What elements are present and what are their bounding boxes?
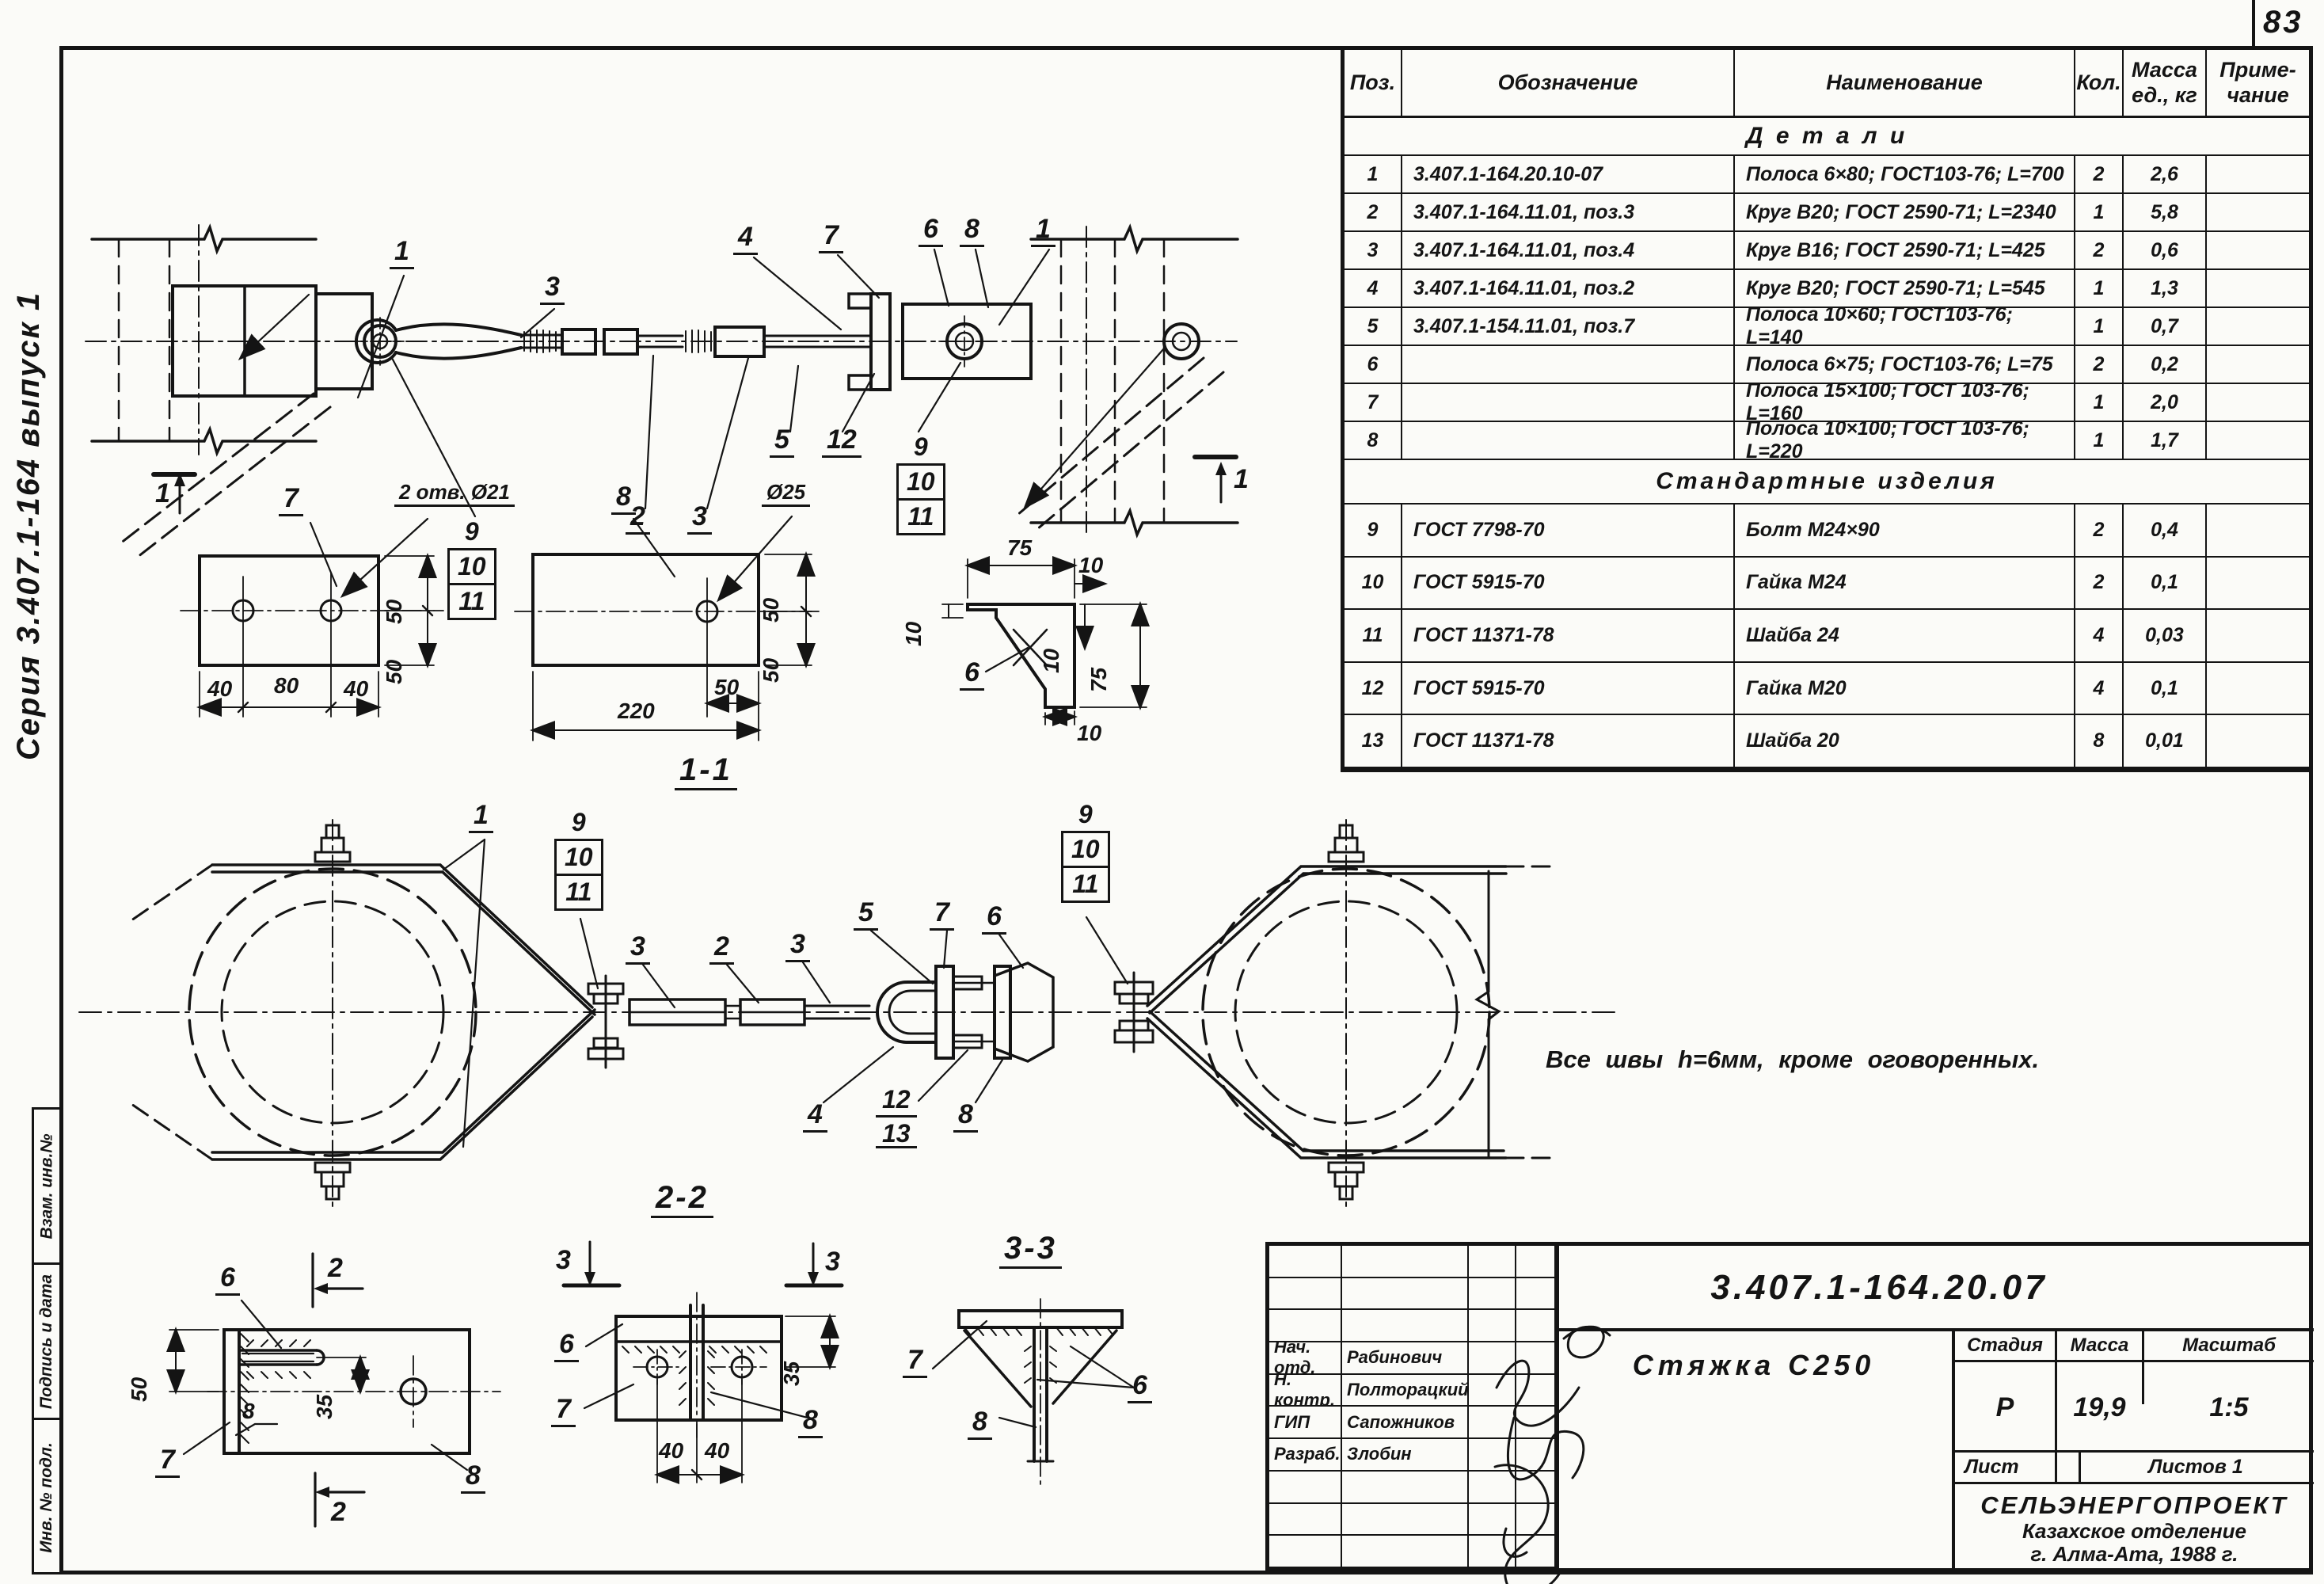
col-header-name: Наименование bbox=[1735, 50, 2075, 118]
scale-value: 1:5 bbox=[2144, 1392, 2314, 1423]
callout-7: 7 bbox=[819, 222, 843, 253]
signer-role: ГИП bbox=[1269, 1407, 1342, 1439]
org-name: СЕЛЬЭНЕРГОПРОЕКТ bbox=[1955, 1491, 2314, 1520]
dim-10: 10 bbox=[1040, 649, 1063, 673]
cell-note bbox=[2207, 270, 2309, 308]
hole-note-plate7: 2 отв. Ø21 bbox=[394, 482, 515, 507]
callout-stack-9-10-11: 9 10 11 bbox=[554, 809, 603, 911]
cell-pos: 11 bbox=[1345, 610, 1402, 663]
callout-1: 1 bbox=[390, 238, 414, 269]
cell-pos: 7 bbox=[1345, 384, 1402, 422]
cell-designation bbox=[1402, 346, 1735, 384]
cell-pos: 8 bbox=[1345, 422, 1402, 460]
callout-9: 9 bbox=[896, 434, 945, 466]
cell-pos: 3 bbox=[1345, 232, 1402, 270]
cell-designation bbox=[1402, 384, 1735, 422]
callout-6: 6 bbox=[554, 1331, 579, 1362]
dim-50: 50 bbox=[128, 1377, 150, 1402]
hole-note-plate8: Ø25 bbox=[762, 482, 810, 507]
cell-pos: 6 bbox=[1345, 346, 1402, 384]
callout-stack-9-10-11: 9 10 11 bbox=[896, 434, 945, 535]
callout-13: 13 bbox=[876, 1118, 917, 1148]
cell-note bbox=[2207, 610, 2309, 663]
cut-mark-3: 3 bbox=[825, 1248, 840, 1275]
cell-mass: 0,4 bbox=[2124, 505, 2207, 558]
callout-10: 10 bbox=[896, 466, 945, 501]
signer-name: Сапожников bbox=[1342, 1407, 1469, 1439]
cell-qty: 2 bbox=[2075, 232, 2124, 270]
dim-50: 50 bbox=[714, 676, 739, 699]
side-stamp-label: Взам. инв.№ bbox=[37, 1133, 56, 1239]
cell-qty: 1 bbox=[2075, 384, 2124, 422]
callout-8: 8 bbox=[461, 1462, 485, 1494]
cell-name: Шайба 20 bbox=[1735, 715, 2075, 768]
cell-pos: 9 bbox=[1345, 505, 1402, 558]
cell-note bbox=[2207, 663, 2309, 716]
col-header-pos: Поз. bbox=[1345, 50, 1402, 118]
dim-10: 10 bbox=[1078, 554, 1103, 577]
doc-number: 3.407.1-164.20.07 bbox=[1602, 1268, 2156, 1308]
section-label-3-3: 3-3 bbox=[999, 1232, 1062, 1269]
callout-7: 7 bbox=[930, 899, 954, 931]
cell-note bbox=[2207, 232, 2309, 270]
weld-size-8: 8 bbox=[242, 1400, 255, 1422]
callout-5: 5 bbox=[770, 426, 794, 458]
cell-designation: ГОСТ 7798-70 bbox=[1402, 505, 1735, 558]
signer-name: Злобин bbox=[1342, 1439, 1469, 1472]
callout-8: 8 bbox=[968, 1408, 992, 1440]
signer-role: Нач. отд. bbox=[1269, 1342, 1342, 1375]
callout-1: 1 bbox=[469, 802, 493, 833]
callout-8: 8 bbox=[798, 1407, 823, 1438]
cell-mass: 1,3 bbox=[2124, 270, 2207, 308]
cell-note bbox=[2207, 346, 2309, 384]
side-stamp-cell: Взам. инв.№ bbox=[34, 1110, 59, 1265]
cell-mass: 2,6 bbox=[2124, 156, 2207, 194]
weld-note: Все швы h=6мм, кроме оговоренных. bbox=[1546, 1047, 2039, 1072]
callout-1: 1 bbox=[1031, 215, 1055, 247]
callout-10: 10 bbox=[1061, 833, 1110, 868]
cell-designation: 3.407.1-164.11.01, поз.3 bbox=[1402, 194, 1735, 232]
side-stamp-cell: Инв. № подл. bbox=[34, 1420, 59, 1575]
cell-name: Гайка М24 bbox=[1735, 558, 2075, 611]
org-branch: Казахское отделение bbox=[1955, 1519, 2314, 1544]
side-stamp-label: Инв. № подл. bbox=[37, 1442, 56, 1553]
stage-value: Р bbox=[1955, 1392, 2055, 1423]
side-stamp-label: Подпись и дата bbox=[37, 1274, 56, 1408]
cell-note bbox=[2207, 422, 2309, 460]
cell-name: Полоса 15×100; ГОСТ 103-76; L=160 bbox=[1735, 384, 2075, 422]
cut-mark-3: 3 bbox=[556, 1247, 571, 1274]
cell-designation: 3.407.1-154.11.01, поз.7 bbox=[1402, 308, 1735, 346]
cell-mass: 0,03 bbox=[2124, 610, 2207, 663]
col-header-qty: Кол. bbox=[2075, 50, 2124, 118]
sheet-label: Лист bbox=[1965, 1456, 2019, 1479]
cell-designation bbox=[1402, 422, 1735, 460]
dim-220: 220 bbox=[618, 700, 655, 722]
callout-5: 5 bbox=[854, 899, 878, 931]
cell-qty: 4 bbox=[2075, 663, 2124, 716]
scale-label: Масштаб bbox=[2144, 1335, 2314, 1357]
callout-11: 11 bbox=[447, 585, 496, 620]
dim-40: 40 bbox=[659, 1440, 683, 1462]
callout-6: 6 bbox=[1128, 1372, 1152, 1403]
product-name: Стяжка С250 bbox=[1556, 1349, 1952, 1382]
cell-qty: 2 bbox=[2075, 558, 2124, 611]
cell-pos: 2 bbox=[1345, 194, 1402, 232]
callout-8: 8 bbox=[960, 215, 984, 247]
cell-designation: ГОСТ 11371-78 bbox=[1402, 610, 1735, 663]
cell-name: Круг В16; ГОСТ 2590-71; L=425 bbox=[1735, 232, 2075, 270]
callout-6: 6 bbox=[215, 1264, 240, 1296]
callout-12: 12 bbox=[876, 1087, 917, 1118]
dim-10: 10 bbox=[1077, 722, 1101, 744]
dim-50: 50 bbox=[383, 600, 405, 624]
cell-qty: 1 bbox=[2075, 194, 2124, 232]
dim-75: 75 bbox=[1088, 668, 1110, 692]
cell-designation: ГОСТ 5915-70 bbox=[1402, 558, 1735, 611]
callout-4: 4 bbox=[733, 223, 758, 255]
mass-label: Масса bbox=[2057, 1335, 2142, 1357]
cell-note bbox=[2207, 384, 2309, 422]
callout-2: 2 bbox=[709, 933, 734, 965]
cell-mass: 5,8 bbox=[2124, 194, 2207, 232]
callout-3: 3 bbox=[540, 273, 565, 305]
section-details: Д е т а л и bbox=[1345, 118, 2309, 156]
callout-3: 3 bbox=[626, 933, 650, 965]
side-stamp-cell: Подпись и дата bbox=[34, 1265, 59, 1420]
cell-name: Шайба 24 bbox=[1735, 610, 2075, 663]
cell-qty: 2 bbox=[2075, 156, 2124, 194]
callout-3: 3 bbox=[785, 931, 810, 962]
cell-designation: 3.407.1-164.11.01, поз.4 bbox=[1402, 232, 1735, 270]
cell-name: Гайка М20 bbox=[1735, 663, 2075, 716]
dim-40: 40 bbox=[344, 678, 368, 700]
signer-name: Полторацкий bbox=[1342, 1375, 1469, 1407]
cut-mark-2: 2 bbox=[331, 1498, 346, 1525]
callout-6: 6 bbox=[960, 659, 984, 691]
cell-qty: 1 bbox=[2075, 308, 2124, 346]
parts-table: Поз. Обозначение Наименование Кол. Масса… bbox=[1341, 46, 2313, 772]
cell-name: Полоса 6×75; ГОСТ103-76; L=75 bbox=[1735, 346, 2075, 384]
section-label-1-1: 1-1 bbox=[675, 754, 737, 790]
callout-3: 3 bbox=[687, 503, 712, 535]
callout-11: 11 bbox=[1061, 868, 1110, 903]
callout-4: 4 bbox=[803, 1101, 827, 1133]
page-number: 83 bbox=[2263, 6, 2303, 38]
series-label: Серия 3.407.1-164 выпуск 1 bbox=[13, 291, 44, 760]
callout-9: 9 bbox=[1061, 802, 1110, 833]
callout-12: 12 bbox=[822, 426, 862, 458]
dim-35: 35 bbox=[314, 1395, 336, 1419]
cell-mass: 0,1 bbox=[2124, 663, 2207, 716]
title-block: Нач. отд. Рабинович Н. контр. Полторацки… bbox=[1265, 1242, 2313, 1572]
callout-stack-9-10-11: 9 10 11 bbox=[1061, 802, 1110, 903]
cell-qty: 8 bbox=[2075, 715, 2124, 768]
dim-35: 35 bbox=[781, 1361, 803, 1386]
cell-note bbox=[2207, 505, 2309, 558]
cell-note bbox=[2207, 308, 2309, 346]
cell-pos: 12 bbox=[1345, 663, 1402, 716]
dim-10: 10 bbox=[903, 622, 925, 646]
cut-mark-1: 1 bbox=[155, 480, 170, 507]
cell-name: Полоса 6×80; ГОСТ103-76; L=700 bbox=[1735, 156, 2075, 194]
callout-11: 11 bbox=[896, 501, 945, 535]
cell-qty: 2 bbox=[2075, 346, 2124, 384]
cell-mass: 0,01 bbox=[2124, 715, 2207, 768]
callout-9: 9 bbox=[554, 809, 603, 841]
col-header-designation: Обозначение bbox=[1402, 50, 1735, 118]
cell-name: Круг В20; ГОСТ 2590-71; L=2340 bbox=[1735, 194, 2075, 232]
cell-note bbox=[2207, 558, 2309, 611]
signer-role: Н. контр. bbox=[1269, 1375, 1342, 1407]
dim-50: 50 bbox=[760, 598, 782, 623]
cell-qty: 1 bbox=[2075, 422, 2124, 460]
cell-mass: 0,2 bbox=[2124, 346, 2207, 384]
org-city: г. Алма-Ата, 1988 г. bbox=[1955, 1542, 2314, 1567]
callout-8: 8 bbox=[953, 1101, 978, 1133]
callout-6: 6 bbox=[982, 903, 1006, 935]
cell-name: Болт М24×90 bbox=[1735, 505, 2075, 558]
cell-note bbox=[2207, 194, 2309, 232]
dim-50: 50 bbox=[760, 658, 782, 683]
cell-pos: 5 bbox=[1345, 308, 1402, 346]
cell-qty: 4 bbox=[2075, 610, 2124, 663]
cell-mass: 1,7 bbox=[2124, 422, 2207, 460]
cell-note bbox=[2207, 156, 2309, 194]
dim-80: 80 bbox=[274, 675, 299, 697]
col-header-note: Приме-чание bbox=[2207, 50, 2309, 118]
cell-mass: 0,1 bbox=[2124, 558, 2207, 611]
cell-name: Круг В20; ГОСТ 2590-71; L=545 bbox=[1735, 270, 2075, 308]
callout-7: 7 bbox=[279, 485, 303, 516]
signer-name: Рабинович bbox=[1342, 1342, 1469, 1375]
col-header-mass: Массаед., кг bbox=[2124, 50, 2207, 118]
callout-10: 10 bbox=[447, 550, 496, 585]
section-standard: Стандартные изделия bbox=[1345, 460, 2309, 505]
callout-8: 8 bbox=[611, 483, 636, 515]
title-block-signature-grid: Нач. отд. Рабинович Н. контр. Полторацки… bbox=[1269, 1246, 1556, 1568]
side-stamp-column: Взам. инв.№ Подпись и дата Инв. № подл. bbox=[32, 1107, 62, 1574]
dim-40: 40 bbox=[207, 678, 232, 700]
cell-mass: 0,6 bbox=[2124, 232, 2207, 270]
cell-name: Полоса 10×100; ГОСТ 103-76; L=220 bbox=[1735, 422, 2075, 460]
section-label-2-2: 2-2 bbox=[651, 1182, 713, 1218]
cell-designation: 3.407.1-164.11.01, поз.2 bbox=[1402, 270, 1735, 308]
cell-name: Полоса 10×60; ГОСТ103-76; L=140 bbox=[1735, 308, 2075, 346]
dim-40: 40 bbox=[705, 1440, 729, 1462]
callout-6: 6 bbox=[919, 215, 943, 247]
cell-designation: 3.407.1-164.20.10-07 bbox=[1402, 156, 1735, 194]
cell-pos: 1 bbox=[1345, 156, 1402, 194]
stage-label: Стадия bbox=[1955, 1335, 2055, 1357]
callout-9: 9 bbox=[447, 519, 496, 550]
dim-50: 50 bbox=[383, 660, 405, 684]
cell-designation: ГОСТ 11371-78 bbox=[1402, 715, 1735, 768]
callout-stack-12-13: 12 13 bbox=[876, 1087, 917, 1148]
cell-pos: 13 bbox=[1345, 715, 1402, 768]
cell-qty: 1 bbox=[2075, 270, 2124, 308]
sheets-label: Листов 1 bbox=[2081, 1456, 2311, 1479]
callout-10: 10 bbox=[554, 841, 603, 876]
signer-role: Разраб. bbox=[1269, 1439, 1342, 1472]
callout-11: 11 bbox=[554, 876, 603, 911]
cut-mark-1: 1 bbox=[1234, 466, 1249, 493]
blueprint-sheet: { "page": { "sheet_number": "83", "serie… bbox=[0, 0, 2324, 1584]
cell-designation: ГОСТ 5915-70 bbox=[1402, 663, 1735, 716]
callout-7: 7 bbox=[551, 1396, 576, 1427]
callout-7: 7 bbox=[155, 1446, 180, 1478]
cell-note bbox=[2207, 715, 2309, 768]
cell-pos: 10 bbox=[1345, 558, 1402, 611]
cut-mark-2: 2 bbox=[328, 1255, 343, 1281]
callout-7: 7 bbox=[903, 1346, 927, 1378]
cell-mass: 0,7 bbox=[2124, 308, 2207, 346]
cell-qty: 2 bbox=[2075, 505, 2124, 558]
cell-pos: 4 bbox=[1345, 270, 1402, 308]
mass-value: 19,9 bbox=[2057, 1392, 2142, 1423]
cell-mass: 2,0 bbox=[2124, 384, 2207, 422]
callout-stack-9-10-11: 9 10 11 bbox=[447, 519, 496, 620]
dim-75: 75 bbox=[1007, 537, 1032, 559]
